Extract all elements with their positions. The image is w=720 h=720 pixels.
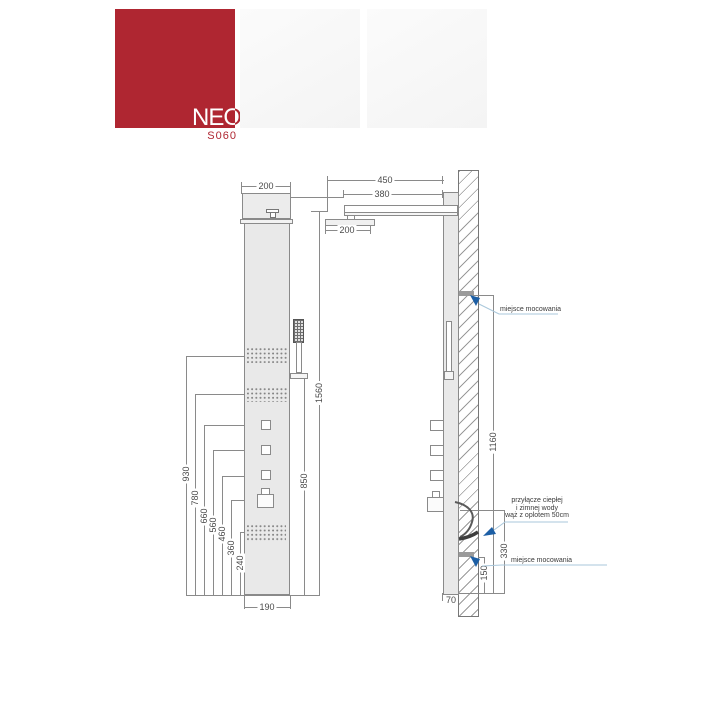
- brand-square: NEO: [115, 9, 235, 128]
- handshower-handle: [296, 342, 302, 373]
- dim-label-200-side: 200: [337, 225, 356, 235]
- note-hose: przyłącze ciepłej i zimnej wody wąż z op…: [504, 497, 570, 520]
- dim-connector: [240, 532, 244, 533]
- side-control-square-1: [430, 420, 444, 431]
- front-control-square-3: [261, 470, 271, 480]
- front-jets-cluster-middle: [247, 388, 288, 402]
- dim-connector: [231, 500, 244, 501]
- arrow-hose-icon: [483, 527, 496, 536]
- side-control-square-2: [430, 445, 444, 456]
- dim-label-380: 380: [372, 189, 391, 199]
- dim-label-70: 70: [446, 595, 456, 605]
- front-jets-cluster-bottom: [247, 525, 286, 541]
- baseline: [186, 595, 320, 596]
- note-mount-top: miejsce mocowania: [500, 306, 561, 314]
- dim-tick: [442, 593, 443, 601]
- note-hose-line-1: przyłącze ciepłej: [504, 497, 570, 505]
- page: NEO NEO S060 200 1560 850: [0, 0, 720, 720]
- dim-label-150: 150: [479, 563, 489, 582]
- dim-tick: [478, 557, 484, 558]
- dim-label-330: 330: [499, 541, 509, 560]
- dim-label-930: 930: [181, 464, 191, 483]
- front-control-square-2: [261, 445, 271, 455]
- side-shower-arm-flange: [344, 212, 458, 216]
- annotation-overlay: [0, 0, 720, 720]
- dim-connector: [213, 450, 244, 451]
- dim-tick: [325, 224, 326, 234]
- dim-tick: [311, 211, 327, 212]
- swatch-light-1: [240, 9, 360, 128]
- dim-connector: [204, 425, 244, 426]
- dim-tick: [296, 378, 308, 379]
- dim-label-850: 850: [299, 471, 309, 490]
- wall-section: [458, 170, 479, 617]
- note-hose-line-2: i zimnej wody: [504, 505, 570, 513]
- dim-tick: [241, 182, 242, 194]
- dim-label-240: 240: [235, 553, 245, 572]
- dim-label-200-top: 200: [256, 181, 275, 191]
- extension-line: [458, 593, 505, 594]
- dim-label-1160: 1160: [488, 430, 498, 453]
- side-handshower-bracket: [444, 371, 454, 380]
- brand-wordmark: NEO: [192, 106, 235, 128]
- dim-connector: [186, 356, 244, 357]
- side-handshower-rod: [446, 321, 452, 372]
- leader-line-mount-bottom: [482, 565, 607, 566]
- dim-connector: [195, 394, 244, 395]
- dim-tick: [343, 190, 344, 198]
- dim-line-380: [343, 194, 444, 195]
- front-mixer-knob: [257, 494, 274, 508]
- mounting-point-top: [459, 291, 474, 296]
- dim-label-780: 780: [190, 488, 200, 507]
- side-mixer-knob: [427, 497, 444, 512]
- extension-line: [327, 181, 328, 212]
- mounting-point-bottom: [459, 552, 474, 557]
- dim-connector: [222, 476, 244, 477]
- front-head-housing: [242, 193, 291, 219]
- swatch-light-2: [367, 9, 487, 128]
- note-mount-bottom: miejsce mocowania: [511, 557, 572, 565]
- front-head-nozzle-stem-icon: [270, 212, 276, 218]
- dim-tick: [370, 226, 371, 234]
- dim-tick: [290, 182, 291, 194]
- side-control-square-3: [430, 470, 444, 481]
- side-panel-strip: [443, 192, 459, 595]
- front-control-square-1: [261, 420, 271, 430]
- handshower-head: [293, 319, 304, 343]
- dim-tick: [473, 295, 493, 296]
- dim-tick: [442, 176, 443, 184]
- dim-tick: [442, 190, 443, 198]
- dim-label-190: 190: [257, 602, 276, 612]
- leader-line-hose: [494, 522, 568, 530]
- dim-label-450: 450: [375, 175, 394, 185]
- front-jets-cluster-top: [247, 348, 288, 363]
- note-hose-line-3: wąż z oplotem 50cm: [504, 512, 570, 520]
- extension-line: [291, 197, 343, 198]
- dim-label-1560: 1560: [314, 381, 324, 405]
- extension-line: [460, 510, 504, 511]
- model-code: S060: [157, 130, 237, 142]
